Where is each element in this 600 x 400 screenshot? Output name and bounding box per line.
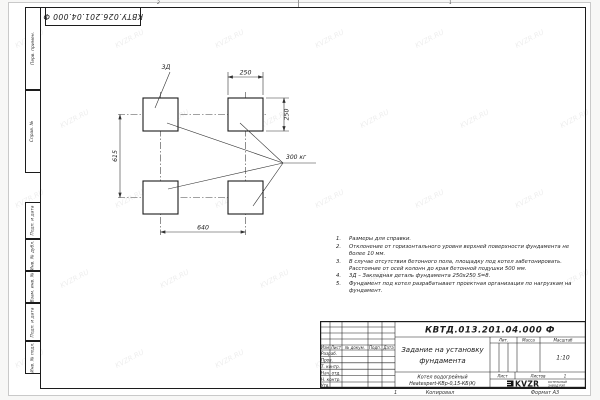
- embed-label: 3Д: [162, 64, 171, 71]
- dim-615-label: 615: [112, 150, 119, 162]
- load-label: 300 кг: [286, 154, 307, 161]
- doc-number: КВТД.013.201.04.000 Ф: [425, 326, 555, 336]
- notes-block: 1.Размеры для справки. 2.Отклонение от г…: [334, 236, 586, 296]
- kvzr-logo-text: KVZR: [515, 379, 539, 388]
- row-nach-otd: Нач. отд.: [321, 370, 341, 375]
- foundation-pad-bottom-left: [143, 181, 178, 214]
- title-block: КВТД.013.201.04.000 Ф Изм Лист № докум. …: [320, 321, 586, 388]
- lit-label: Лит.: [498, 338, 508, 343]
- dim-640-label: 640: [197, 225, 209, 232]
- product-line1: Котел водогрейный: [417, 375, 467, 381]
- col-list: Лист: [330, 345, 342, 350]
- foundation-pad-top-right: [228, 98, 263, 131]
- margin-box-podp-data-1: Подп. и дата: [25, 202, 41, 239]
- kvzr-logo: KVZR КОТЕЛЬНЫЙ ЗАВОД РЭП: [507, 379, 568, 388]
- row-utv: Утв.: [321, 383, 330, 388]
- margin-label: Инв. № подл.: [31, 342, 36, 372]
- mass-label: Масса: [522, 338, 535, 343]
- margin-label: Взам. инв. №: [31, 272, 36, 302]
- scale-label: Масштаб: [553, 338, 573, 343]
- sheets-label: Листов: [530, 374, 547, 379]
- foundation-pad-bottom-right: [228, 181, 263, 214]
- margin-box-sprav-no: Справ. №: [25, 90, 41, 173]
- foundation-plan: 250 250 615 640 3Д 300 кг: [100, 55, 320, 245]
- zone-divider: [298, 0, 299, 7]
- kvzr-logo-sub2: ЗАВОД РЭП: [548, 383, 566, 387]
- note-item: 1.Размеры для справки.: [334, 236, 586, 243]
- kvzr-logo-mark: [507, 381, 514, 387]
- zone-mark-top-left: 2: [157, 1, 160, 6]
- note-item: 4.3Д – Закладная деталь фундамента 250х2…: [334, 273, 586, 280]
- note-text: Фундамент под котел разрабатывает проект…: [349, 281, 586, 295]
- margin-box-perv-primen: Перв. примен.: [25, 7, 41, 90]
- margin-label: Справ. №: [31, 121, 36, 142]
- col-podp: Подп.: [369, 345, 381, 350]
- note-item: 2.Отклонение от горизонтального уровня в…: [334, 244, 586, 258]
- drawing-title-line2: фундамента: [419, 357, 465, 365]
- note-number: 2.: [334, 244, 349, 258]
- format-label: Формат А3: [513, 390, 577, 396]
- sheets-value: 1: [564, 374, 567, 379]
- note-text: В случае отсутствия бетонного пола, площ…: [349, 259, 586, 273]
- zone-mark-bottom: 1: [394, 390, 397, 396]
- row-n-kontr: Н. контр.: [321, 377, 341, 382]
- col-data: Дата: [382, 345, 394, 350]
- note-text: Размеры для справки.: [349, 236, 586, 243]
- copied-label: Копировал: [408, 390, 472, 396]
- note-number: 1.: [334, 236, 349, 243]
- row-prov: Пров.: [321, 358, 333, 363]
- foundation-pad-top-left: [143, 98, 178, 131]
- margin-box-podp-data-2: Подп. и дата: [25, 303, 41, 341]
- note-number: 3.: [334, 259, 349, 273]
- margin-box-vzam-inv: Взам. инв. №: [25, 271, 41, 303]
- sheet-label: Лист: [496, 374, 508, 379]
- margin-label: Подп. и дата: [31, 307, 36, 337]
- drawing-title-line1: Задание на установку: [401, 346, 484, 354]
- scale-value: 1:10: [556, 355, 570, 362]
- margin-box-inv-podl: Инв. № подл.: [25, 341, 41, 374]
- note-text: Отклонение от горизонтального уровня вер…: [349, 244, 586, 258]
- note-number: 4.: [334, 273, 349, 280]
- blueprint-page: { "sheet": { "corner_stamp": "КВТУ.026.2…: [0, 0, 600, 400]
- margin-label: Инв. № дубл.: [31, 240, 36, 270]
- corner-stamp-number: КВТУ.026.201.04.000 Ф: [43, 12, 143, 21]
- margin-label: Перв. примен.: [31, 32, 36, 65]
- corner-stamp: КВТУ.026.201.04.000 Ф: [45, 7, 141, 26]
- dim-250-top-label: 250: [240, 70, 252, 77]
- logo-stripe: [507, 384, 511, 385]
- note-item: 5.Фундамент под котел разрабатывает прое…: [334, 281, 586, 295]
- row-razrab: Разраб.: [321, 351, 337, 356]
- margin-box-inv-dubl: Инв. № дубл.: [25, 239, 41, 271]
- dim-250-right-label: 250: [284, 109, 291, 121]
- col-dokum: № докум.: [344, 345, 365, 350]
- note-number: 5.: [334, 281, 349, 295]
- zone-mark-top-right: 1: [449, 1, 452, 6]
- note-item: 3.В случае отсутствия бетонного пола, пл…: [334, 259, 586, 273]
- row-t-kontr: Т. контр.: [321, 364, 340, 369]
- margin-label: Подп. и дата: [31, 206, 36, 236]
- product-line2: Heatexpert-КВр-0,15-КБ(К): [409, 381, 476, 387]
- note-text: 3Д – Закладная деталь фундамента 250х250…: [349, 273, 586, 280]
- col-izm: Изм: [321, 345, 329, 350]
- logo-stripe: [507, 382, 511, 383]
